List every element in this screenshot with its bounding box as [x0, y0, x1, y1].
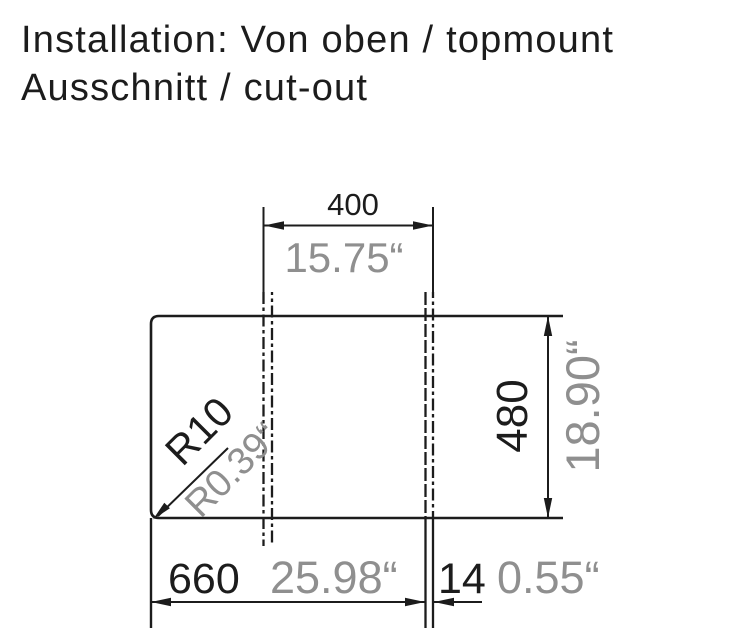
dim-offset-mm: 14 — [438, 555, 486, 603]
dim-bottom-width-inch: 25.98“ — [270, 552, 398, 603]
dim-height-inch: 18.90“ — [556, 339, 609, 472]
arrowhead-bottom-right — [405, 598, 425, 606]
dim-offset-inch: 0.55“ — [497, 552, 600, 603]
arrowhead-right-top — [544, 316, 552, 336]
arrowhead-top-left — [264, 221, 284, 229]
cutout-dimension-drawing: 400 15.75“ 480 18.90“ 660 25.98“ 14 0.55… — [0, 0, 749, 640]
dim-bottom-width-mm: 660 — [168, 555, 240, 603]
arrowhead-top-right — [413, 221, 433, 229]
arrowhead-right-bottom — [544, 498, 552, 518]
dim-top-width-inch: 15.75“ — [284, 234, 403, 281]
page: Installation: Von oben / topmount Aussch… — [0, 0, 749, 640]
dim-top-width-mm: 400 — [327, 187, 379, 222]
dim-height-mm: 480 — [488, 379, 537, 452]
